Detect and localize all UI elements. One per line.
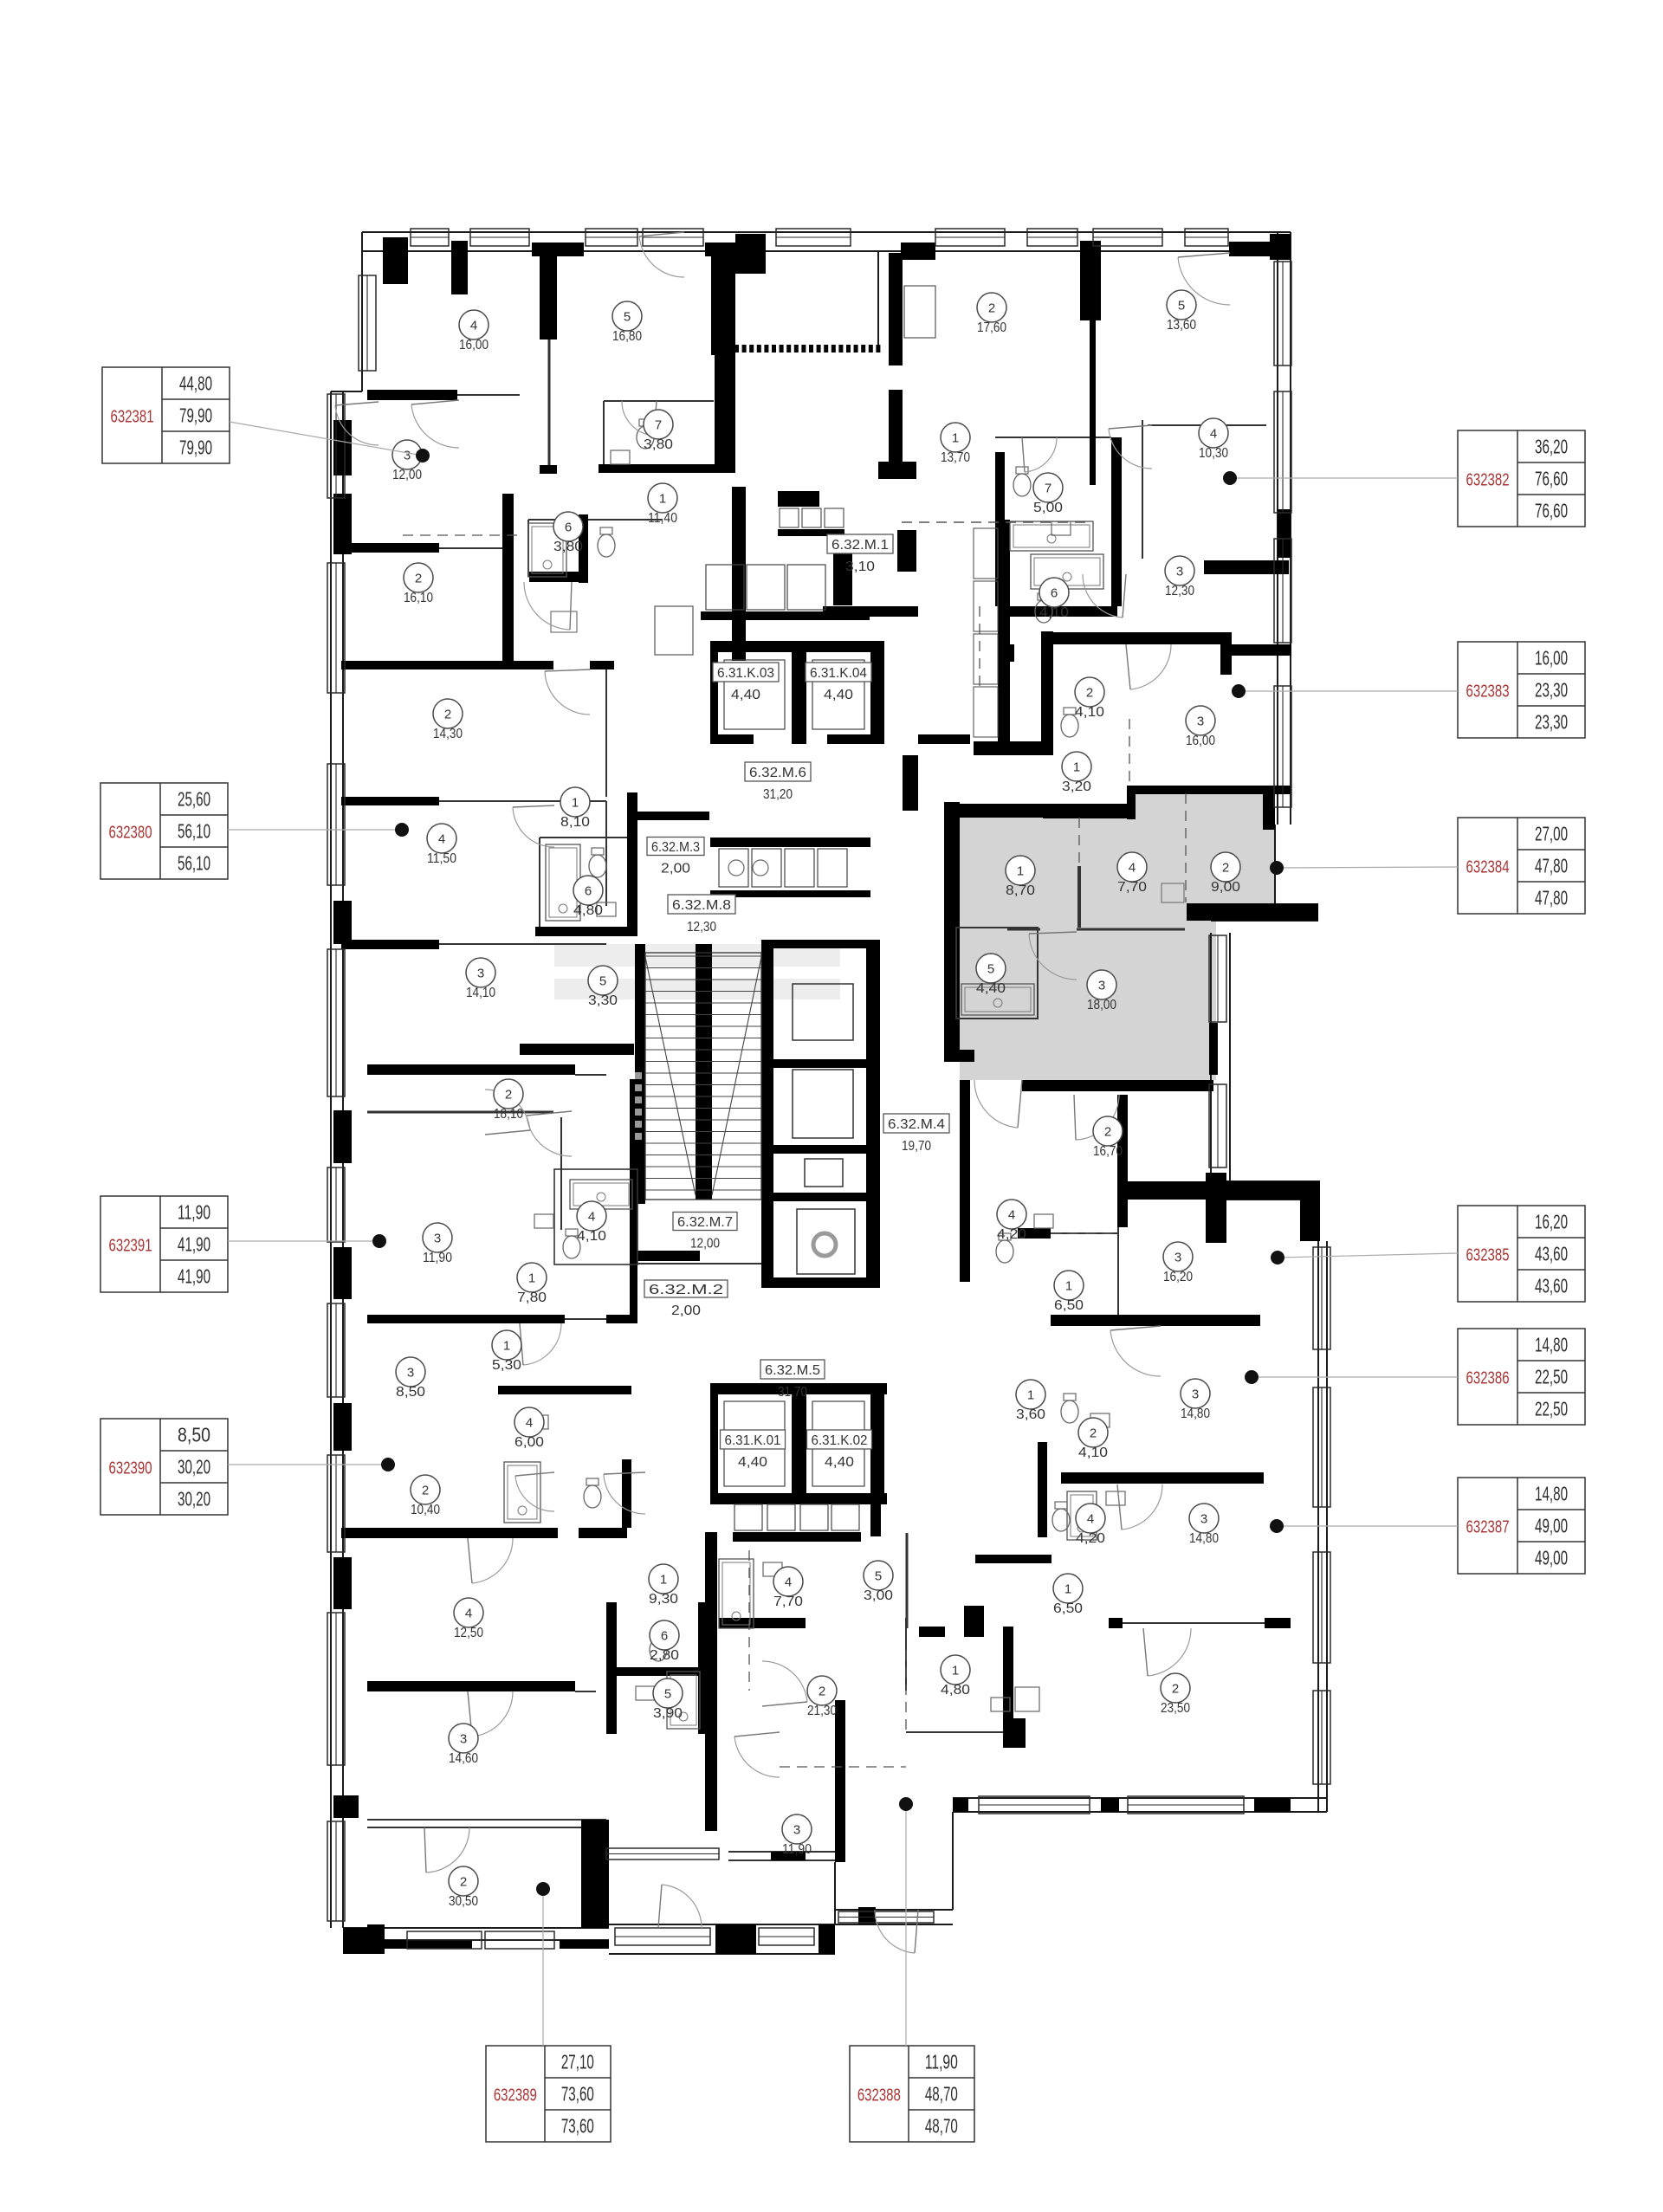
svg-text:47,80: 47,80 — [1535, 887, 1568, 909]
svg-text:4,40: 4,40 — [731, 688, 760, 702]
svg-text:9,30: 9,30 — [649, 1592, 678, 1607]
svg-text:48,70: 48,70 — [925, 2083, 958, 2105]
svg-text:4,40: 4,40 — [738, 1455, 767, 1470]
svg-text:3: 3 — [460, 1732, 467, 1747]
svg-text:6.31.K.03: 6.31.K.03 — [717, 666, 774, 681]
svg-text:4,10: 4,10 — [1039, 605, 1069, 620]
svg-text:2: 2 — [1172, 1682, 1179, 1697]
svg-text:41,90: 41,90 — [178, 1265, 210, 1288]
svg-text:2: 2 — [460, 1875, 467, 1890]
svg-text:632387: 632387 — [1466, 1518, 1510, 1537]
svg-text:8,70: 8,70 — [1006, 883, 1035, 898]
svg-text:4,40: 4,40 — [824, 688, 853, 702]
svg-text:3,90: 3,90 — [653, 1706, 683, 1721]
svg-text:12,00: 12,00 — [690, 1237, 720, 1252]
svg-text:5,30: 5,30 — [492, 1358, 521, 1373]
svg-text:49,00: 49,00 — [1535, 1515, 1568, 1537]
svg-text:79,90: 79,90 — [179, 437, 212, 459]
svg-text:3,00: 3,00 — [864, 1588, 893, 1603]
svg-text:23,30: 23,30 — [1535, 711, 1568, 734]
svg-text:632381: 632381 — [111, 408, 154, 427]
svg-text:1: 1 — [1073, 760, 1080, 775]
svg-text:10,40: 10,40 — [411, 1503, 440, 1517]
svg-text:11,90: 11,90 — [423, 1251, 452, 1265]
svg-text:6,50: 6,50 — [1053, 1601, 1083, 1616]
svg-text:47,80: 47,80 — [1535, 855, 1568, 877]
svg-text:632383: 632383 — [1466, 682, 1510, 702]
svg-text:6.31.K.01: 6.31.K.01 — [725, 1433, 781, 1448]
svg-text:2: 2 — [415, 572, 422, 586]
svg-text:16,00: 16,00 — [459, 338, 489, 352]
svg-text:5: 5 — [599, 974, 606, 989]
svg-text:9,00: 9,00 — [1211, 880, 1240, 895]
svg-text:22,50: 22,50 — [1535, 1366, 1568, 1388]
svg-text:13,60: 13,60 — [1167, 318, 1196, 333]
svg-text:5: 5 — [624, 310, 631, 325]
svg-text:5: 5 — [987, 962, 994, 977]
svg-text:5: 5 — [664, 1687, 671, 1702]
svg-text:3,80: 3,80 — [644, 437, 673, 452]
svg-text:2,80: 2,80 — [650, 1648, 679, 1663]
svg-text:21,30: 21,30 — [807, 1704, 837, 1718]
svg-text:632388: 632388 — [857, 2086, 901, 2105]
svg-text:6.32.M.1: 6.32.M.1 — [831, 538, 889, 553]
svg-text:1: 1 — [1017, 864, 1024, 879]
svg-text:11,90: 11,90 — [178, 1201, 210, 1224]
svg-text:16,70: 16,70 — [1093, 1144, 1123, 1159]
svg-text:2: 2 — [819, 1685, 825, 1699]
svg-text:6: 6 — [1051, 586, 1058, 601]
svg-text:4: 4 — [1210, 427, 1217, 442]
svg-text:4: 4 — [526, 1416, 533, 1431]
svg-text:6: 6 — [661, 1629, 668, 1644]
svg-text:4,10: 4,10 — [577, 1229, 606, 1244]
svg-text:2: 2 — [1086, 686, 1093, 701]
svg-text:76,60: 76,60 — [1535, 468, 1568, 490]
svg-text:56,10: 56,10 — [178, 820, 210, 843]
svg-text:7,70: 7,70 — [1117, 880, 1147, 895]
svg-text:16,80: 16,80 — [612, 329, 642, 344]
svg-text:6: 6 — [585, 884, 592, 899]
svg-text:12,00: 12,00 — [392, 468, 422, 482]
svg-text:5,00: 5,00 — [1033, 501, 1063, 515]
svg-text:4: 4 — [1087, 1512, 1094, 1527]
svg-text:14,10: 14,10 — [466, 986, 495, 1000]
svg-text:6.32.M.7: 6.32.M.7 — [677, 1215, 733, 1230]
svg-text:6.32.M.2: 6.32.M.2 — [649, 1283, 723, 1297]
svg-text:4,10: 4,10 — [1075, 705, 1104, 720]
svg-text:11,50: 11,50 — [427, 851, 456, 866]
svg-text:3: 3 — [434, 1232, 441, 1246]
svg-text:16,20: 16,20 — [1535, 1211, 1568, 1233]
svg-text:6.31.K.04: 6.31.K.04 — [810, 666, 867, 681]
svg-text:1: 1 — [572, 796, 579, 811]
svg-text:4: 4 — [465, 1607, 472, 1621]
svg-text:6.32.M.4: 6.32.M.4 — [888, 1117, 945, 1132]
svg-text:18,00: 18,00 — [1087, 998, 1116, 1012]
svg-text:3,10: 3,10 — [845, 559, 875, 574]
svg-text:16,00: 16,00 — [1535, 647, 1568, 669]
svg-text:6.32.M.3: 6.32.M.3 — [651, 840, 700, 855]
svg-text:1: 1 — [1027, 1388, 1034, 1403]
svg-text:31,20: 31,20 — [763, 787, 793, 802]
svg-text:1: 1 — [659, 492, 666, 507]
svg-text:44,80: 44,80 — [179, 372, 212, 395]
svg-text:4,20: 4,20 — [997, 1227, 1026, 1242]
svg-text:1: 1 — [503, 1339, 510, 1354]
svg-text:1: 1 — [660, 1573, 667, 1588]
svg-text:43,60: 43,60 — [1535, 1275, 1568, 1297]
svg-text:27,10: 27,10 — [561, 2051, 594, 2073]
svg-text:4,80: 4,80 — [573, 903, 603, 918]
svg-text:3: 3 — [477, 967, 484, 981]
svg-text:19,70: 19,70 — [902, 1139, 931, 1154]
svg-text:17,60: 17,60 — [977, 320, 1006, 335]
svg-text:632389: 632389 — [494, 2086, 537, 2105]
svg-text:2: 2 — [1090, 1426, 1097, 1441]
svg-text:30,50: 30,50 — [449, 1894, 478, 1909]
svg-text:632380: 632380 — [109, 824, 152, 843]
svg-text:8,50: 8,50 — [396, 1385, 425, 1400]
svg-text:6.32.M.8: 6.32.M.8 — [672, 898, 731, 913]
svg-text:73,60: 73,60 — [561, 2083, 594, 2105]
svg-text:4: 4 — [785, 1575, 792, 1590]
svg-text:56,10: 56,10 — [178, 852, 210, 875]
svg-text:1: 1 — [952, 431, 959, 446]
svg-text:7: 7 — [655, 418, 662, 433]
svg-text:3: 3 — [1200, 1512, 1207, 1527]
svg-text:41,90: 41,90 — [178, 1233, 210, 1256]
svg-text:3: 3 — [404, 449, 411, 463]
svg-text:11,40: 11,40 — [648, 511, 677, 526]
svg-text:2: 2 — [422, 1484, 429, 1498]
svg-text:22,50: 22,50 — [1535, 1398, 1568, 1420]
svg-text:14,80: 14,80 — [1189, 1531, 1219, 1546]
svg-text:31,70: 31,70 — [778, 1385, 807, 1400]
svg-text:2: 2 — [444, 708, 451, 722]
svg-text:2: 2 — [505, 1088, 512, 1103]
svg-text:36,20: 36,20 — [1535, 436, 1568, 458]
svg-text:14,30: 14,30 — [433, 727, 463, 741]
svg-text:3: 3 — [1174, 1251, 1181, 1265]
svg-text:76,60: 76,60 — [1535, 500, 1568, 522]
svg-text:4: 4 — [588, 1210, 595, 1225]
svg-text:4,20: 4,20 — [1076, 1531, 1105, 1546]
svg-text:1: 1 — [1064, 1582, 1071, 1597]
svg-text:12,30: 12,30 — [687, 920, 716, 935]
svg-text:2,00: 2,00 — [661, 862, 690, 876]
svg-text:4: 4 — [1008, 1208, 1015, 1223]
svg-text:1: 1 — [1065, 1279, 1072, 1294]
svg-text:632382: 632382 — [1466, 471, 1510, 490]
svg-text:3: 3 — [1176, 565, 1183, 579]
svg-text:14,60: 14,60 — [449, 1751, 478, 1766]
svg-text:79,90: 79,90 — [179, 404, 212, 427]
svg-text:30,20: 30,20 — [178, 1488, 210, 1510]
svg-text:73,60: 73,60 — [561, 2115, 594, 2138]
svg-text:13,70: 13,70 — [941, 450, 970, 465]
svg-text:3,60: 3,60 — [1016, 1407, 1045, 1422]
svg-text:4,40: 4,40 — [825, 1455, 854, 1470]
svg-text:3,80: 3,80 — [553, 540, 583, 554]
svg-text:23,30: 23,30 — [1535, 679, 1568, 702]
svg-text:25,60: 25,60 — [178, 788, 210, 811]
svg-text:12,50: 12,50 — [454, 1626, 483, 1640]
svg-text:4,80: 4,80 — [941, 1683, 970, 1698]
svg-text:14,80: 14,80 — [1181, 1407, 1210, 1421]
svg-text:6,00: 6,00 — [514, 1435, 544, 1450]
svg-text:4: 4 — [470, 319, 477, 333]
svg-text:3: 3 — [793, 1823, 800, 1838]
svg-text:3,30: 3,30 — [588, 993, 618, 1008]
svg-text:14,80: 14,80 — [1535, 1334, 1568, 1356]
svg-text:632391: 632391 — [109, 1237, 152, 1256]
svg-text:632385: 632385 — [1466, 1246, 1510, 1265]
svg-text:10,30: 10,30 — [1199, 446, 1228, 461]
svg-text:3,20: 3,20 — [1062, 779, 1091, 794]
svg-text:7,70: 7,70 — [773, 1594, 803, 1609]
svg-text:2: 2 — [1104, 1125, 1111, 1140]
svg-text:4: 4 — [1129, 861, 1136, 876]
svg-text:4,40: 4,40 — [976, 981, 1006, 996]
svg-text:6.32.M.6: 6.32.M.6 — [749, 766, 806, 780]
svg-text:12,30: 12,30 — [1165, 584, 1194, 598]
svg-text:632386: 632386 — [1466, 1369, 1510, 1388]
svg-text:6: 6 — [565, 521, 572, 535]
svg-text:16,00: 16,00 — [1186, 734, 1215, 748]
svg-text:6.32.M.5: 6.32.M.5 — [765, 1363, 820, 1378]
svg-text:8,10: 8,10 — [560, 815, 590, 830]
svg-text:8,50: 8,50 — [178, 1424, 210, 1446]
svg-text:23,50: 23,50 — [1161, 1701, 1190, 1716]
svg-text:14,80: 14,80 — [1535, 1483, 1568, 1505]
svg-text:7: 7 — [1045, 482, 1052, 496]
svg-text:3: 3 — [1098, 979, 1105, 993]
svg-text:18,10: 18,10 — [494, 1107, 523, 1122]
svg-text:3: 3 — [407, 1366, 414, 1381]
svg-text:1: 1 — [952, 1664, 959, 1678]
svg-text:632384: 632384 — [1466, 858, 1510, 877]
svg-text:1: 1 — [528, 1271, 535, 1286]
svg-text:3: 3 — [1192, 1387, 1199, 1402]
svg-text:632390: 632390 — [109, 1459, 152, 1478]
svg-text:49,00: 49,00 — [1535, 1547, 1568, 1569]
svg-text:6.31.K.02: 6.31.K.02 — [812, 1433, 868, 1448]
svg-text:27,00: 27,00 — [1535, 823, 1568, 845]
svg-text:16,10: 16,10 — [404, 591, 433, 605]
svg-text:5: 5 — [875, 1569, 882, 1584]
svg-text:11,90: 11,90 — [782, 1842, 812, 1857]
svg-text:5: 5 — [1178, 299, 1185, 314]
svg-text:2,00: 2,00 — [671, 1303, 701, 1318]
svg-text:48,70: 48,70 — [925, 2115, 958, 2138]
svg-text:7,80: 7,80 — [517, 1290, 547, 1305]
svg-text:43,60: 43,60 — [1535, 1243, 1568, 1265]
svg-text:3: 3 — [1197, 715, 1204, 729]
svg-text:2: 2 — [988, 301, 995, 316]
svg-text:11,90: 11,90 — [925, 2051, 958, 2073]
svg-text:2: 2 — [1222, 861, 1229, 876]
svg-text:4,10: 4,10 — [1078, 1446, 1108, 1460]
svg-text:6,50: 6,50 — [1054, 1298, 1084, 1313]
svg-text:30,20: 30,20 — [178, 1456, 210, 1478]
svg-text:16,20: 16,20 — [1163, 1270, 1193, 1284]
svg-text:4: 4 — [438, 832, 445, 847]
